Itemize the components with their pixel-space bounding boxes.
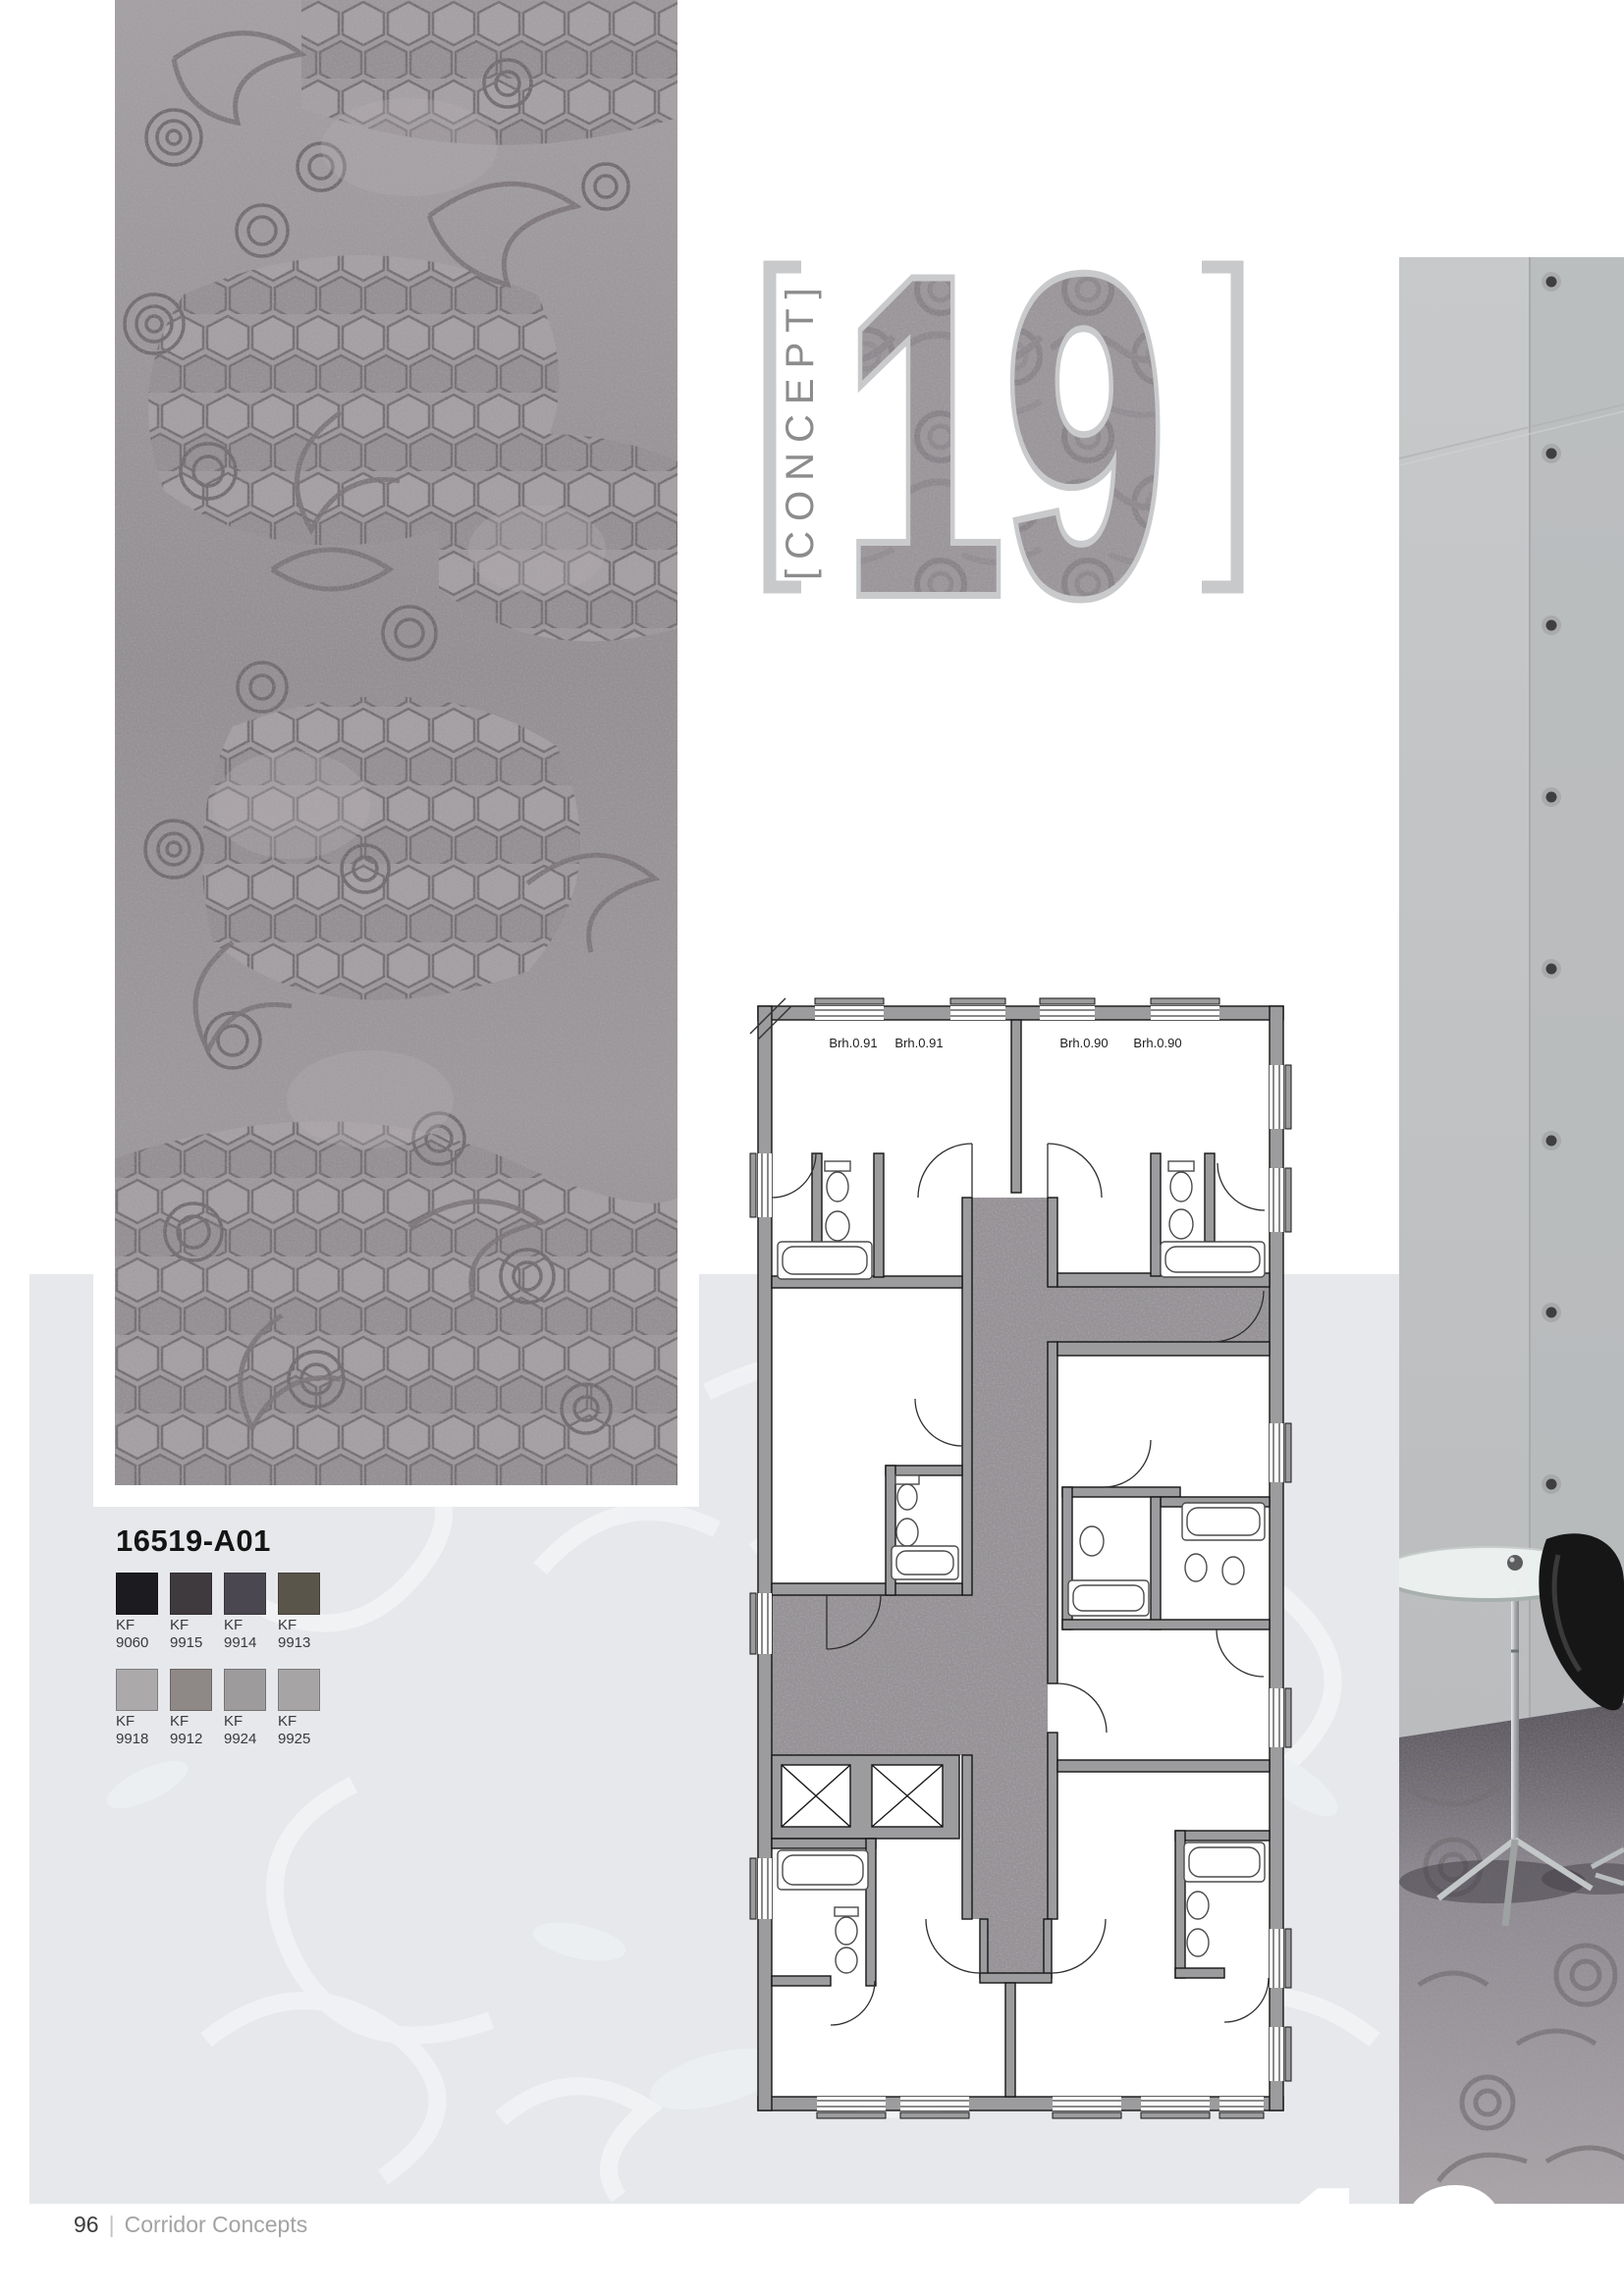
swatch-grid: KF 9060 KF 9915 KF 9914 KF 9913 KF 9 <box>116 1573 332 1748</box>
swatch-prefix: KF <box>224 1713 243 1730</box>
swatch-item: KF 9924 <box>224 1669 278 1749</box>
color-swatch <box>224 1669 266 1711</box>
room-label: Brh.0.90 <box>1133 1036 1181 1050</box>
swatch-code: 9924 <box>224 1731 256 1747</box>
swatch-code: 9912 <box>170 1731 202 1747</box>
swatch-code: 9915 <box>170 1634 202 1651</box>
color-swatch <box>278 1669 320 1711</box>
color-swatch <box>170 1573 212 1615</box>
page-number: 96 <box>74 2212 99 2237</box>
swatch-code: 9913 <box>278 1634 310 1651</box>
swatch-code: 9925 <box>278 1731 310 1747</box>
color-swatch <box>116 1573 158 1615</box>
room-label: Brh.0.91 <box>894 1036 943 1050</box>
catalog-page: [CONCEPT] 19 <box>0 0 1624 2296</box>
concept-vertical-label: [CONCEPT] <box>779 278 822 580</box>
swatch-prefix: KF <box>278 1617 297 1633</box>
page-footer: 96|Corridor Concepts <box>74 2212 307 2238</box>
swatch-item: KF 9060 <box>116 1573 170 1653</box>
floor-plan: Brh.0.91 Brh.0.91 Brh.0.90 Brh.0.90 <box>748 996 1293 2120</box>
product-code: 16519-A01 <box>116 1523 332 1559</box>
bracket-right-icon <box>1202 267 1237 587</box>
color-swatch <box>278 1573 320 1615</box>
footer-separator: | <box>99 2212 125 2237</box>
swatch-item: KF 9918 <box>116 1669 170 1749</box>
swatch-item: KF 9925 <box>278 1669 332 1749</box>
product-block: 16519-A01 KF 9060 KF 9915 KF 9914 KF 991… <box>116 1523 332 1748</box>
swatch-item: KF 9915 <box>170 1573 224 1653</box>
interior-photo <box>1399 257 1624 2204</box>
swatch-item: KF 9913 <box>278 1573 332 1653</box>
swatch-prefix: KF <box>116 1617 135 1633</box>
carpet-sample <box>115 0 677 1485</box>
swatch-prefix: KF <box>116 1713 135 1730</box>
swatch-code: 9060 <box>116 1634 148 1651</box>
swatch-prefix: KF <box>170 1617 189 1633</box>
color-swatch <box>170 1669 212 1711</box>
concept-number: 19 <box>842 250 1166 604</box>
swatch-prefix: KF <box>224 1617 243 1633</box>
swatch-code: 9918 <box>116 1731 148 1747</box>
swatch-prefix: KF <box>170 1713 189 1730</box>
watermark-number: 19 <box>1260 2140 1519 2296</box>
swatch-item: KF 9914 <box>224 1573 278 1653</box>
concept-header: [CONCEPT] 19 <box>756 250 1247 604</box>
room-label: Brh.0.90 <box>1059 1036 1108 1050</box>
swatch-item: KF 9912 <box>170 1669 224 1749</box>
color-swatch <box>224 1573 266 1615</box>
swatch-code: 9914 <box>224 1634 256 1651</box>
footer-section-title: Corridor Concepts <box>125 2212 308 2237</box>
carpet-sample-frame <box>93 0 699 1507</box>
swatch-prefix: KF <box>278 1713 297 1730</box>
color-swatch <box>116 1669 158 1711</box>
room-label: Brh.0.91 <box>829 1036 877 1050</box>
